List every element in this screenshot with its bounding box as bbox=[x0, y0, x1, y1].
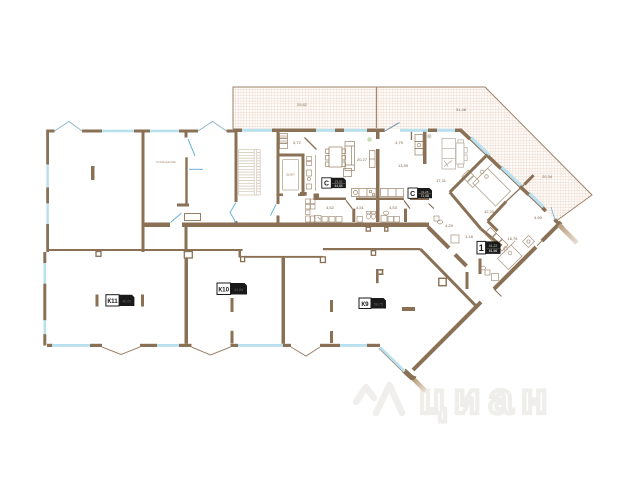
svg-text:4,79: 4,79 bbox=[395, 140, 404, 145]
svg-text:4,29: 4,29 bbox=[445, 223, 454, 228]
svg-text:44,84: 44,84 bbox=[334, 184, 342, 188]
svg-text:4,90: 4,90 bbox=[534, 215, 543, 220]
svg-text:5,72: 5,72 bbox=[293, 140, 302, 145]
svg-text:ЛИФТ: ЛИФТ bbox=[286, 173, 295, 177]
svg-text:71,08: 71,08 bbox=[421, 194, 429, 198]
svg-text:4,53: 4,53 bbox=[389, 205, 398, 210]
svg-text:13,99: 13,99 bbox=[398, 163, 409, 168]
svg-text:К10: К10 bbox=[218, 287, 229, 294]
svg-text:К11: К11 bbox=[107, 298, 118, 305]
svg-text:1: 1 bbox=[479, 243, 484, 253]
svg-text:К9: К9 bbox=[361, 301, 369, 308]
svg-text:43,69: 43,69 bbox=[234, 288, 243, 292]
svg-text:С: С bbox=[324, 181, 329, 188]
svg-text:циан: циан bbox=[419, 375, 556, 423]
svg-text:20,34: 20,34 bbox=[542, 174, 553, 179]
svg-text:3,18: 3,18 bbox=[465, 234, 474, 239]
svg-text:20,27: 20,27 bbox=[357, 157, 368, 162]
svg-text:46,05: 46,05 bbox=[122, 299, 131, 303]
svg-text:29,82: 29,82 bbox=[297, 102, 308, 107]
svg-text:ПОМЕЩЕНИЕ: ПОМЕЩЕНИЕ bbox=[156, 160, 176, 164]
svg-text:16,76: 16,76 bbox=[507, 236, 518, 241]
svg-text:С: С bbox=[410, 191, 415, 198]
svg-text:12,20: 12,20 bbox=[484, 209, 495, 214]
svg-text:31,48: 31,48 bbox=[456, 107, 467, 112]
svg-text:4,51: 4,51 bbox=[356, 205, 365, 210]
svg-text:41,22: 41,22 bbox=[489, 244, 498, 248]
svg-text:17,31: 17,31 bbox=[436, 178, 447, 183]
svg-text:61,56: 61,56 bbox=[489, 249, 498, 253]
svg-text:4,52: 4,52 bbox=[326, 205, 335, 210]
svg-text:58,75: 58,75 bbox=[374, 302, 383, 306]
